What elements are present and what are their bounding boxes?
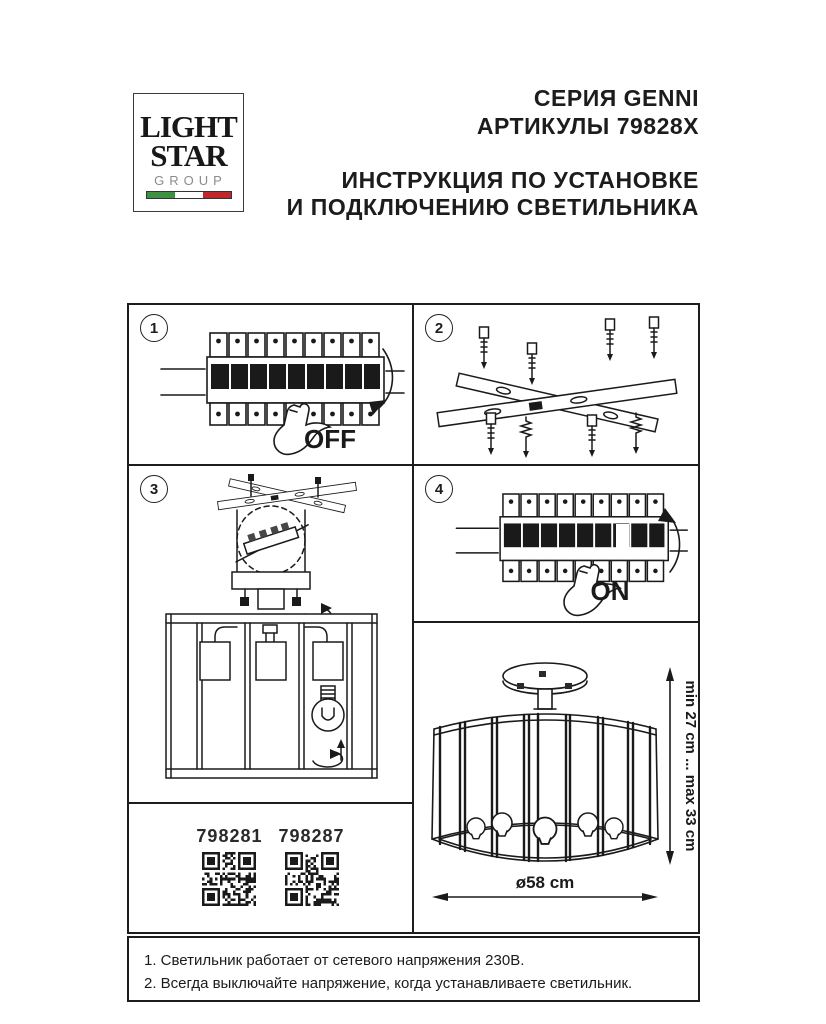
flag-green [147,192,175,198]
qr-item-left: 798281 [196,826,262,911]
qr-code-right [279,852,345,911]
flag-white [175,192,203,198]
step-number-2: 2 [425,314,453,342]
logo-word-star: STAR [134,141,243,170]
qr-item-right: 798287 [279,826,345,911]
lightstar-logo: LIGHT STAR GROUP [133,93,244,212]
instruction-title: ИНСТРУКЦИЯ ПО УСТАНОВКЕ И ПОДКЛЮЧЕНИЮ СВ… [287,167,699,221]
flag-red [203,192,231,198]
qr-panel: 798281 798287 [127,802,414,934]
italian-flag-stripe [146,191,232,199]
note-line-2: 2. Всегда выключайте напряжение, когда у… [129,972,698,995]
step-panel-4: 4 ON [412,464,700,623]
step-panel-2: 2 [412,303,700,466]
qr-code-left [196,852,262,911]
articles-title: АРТИКУЛЫ 79828X [287,112,699,140]
series-title: СЕРИЯ GENNI [287,84,699,112]
height-dimension [666,667,674,865]
breaker-on-diagram: ON [414,466,698,621]
article-code-left: 798281 [196,826,262,847]
ceiling-lamp-drawing: min 27 cm ... max 33 cm ø58 cm [414,623,698,932]
diameter-dimension [432,893,658,901]
step-panel-1: 1 OFF [127,303,414,466]
logo-word-light: LIGHT [134,112,243,141]
off-label: OFF [304,424,356,454]
logo-word-group: GROUP [138,173,243,188]
step-number-1: 1 [140,314,168,342]
article-code-right: 798287 [279,826,345,847]
diameter-dimension-label: ø58 cm [516,873,575,892]
instruction-title-line2: И ПОДКЛЮЧЕНИЮ СВЕТИЛЬНИКА [287,194,699,221]
mounting-bracket-diagram [414,305,698,464]
note-line-1: 1. Светильник работает от сетевого напря… [129,938,698,972]
breaker-off-diagram: OFF [129,305,412,464]
height-dimension-label: min 27 cm ... max 33 cm [682,681,698,852]
product-dimensions-panel: min 27 cm ... max 33 cm ø58 cm [412,621,700,934]
instruction-sheet: LIGHT STAR GROUP СЕРИЯ GENNI АРТИКУЛЫ 79… [0,0,826,1024]
step-number-3: 3 [140,475,168,503]
instruction-title-line1: ИНСТРУКЦИЯ ПО УСТАНОВКЕ [287,167,699,194]
header-block: СЕРИЯ GENNI АРТИКУЛЫ 79828X ИНСТРУКЦИЯ П… [287,84,699,221]
step-number-4: 4 [425,475,453,503]
notes-box: 1. Светильник работает от сетевого напря… [127,936,700,1002]
fixture-assembly-diagram [129,466,412,802]
on-label: ON [591,576,630,606]
step-panel-3: 3 [127,464,414,804]
